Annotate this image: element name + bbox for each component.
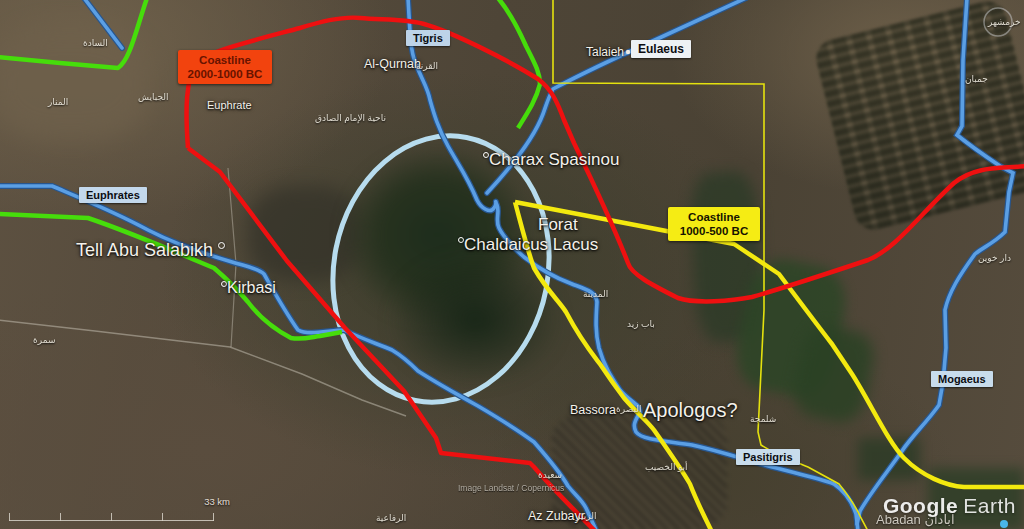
green-line-northwest bbox=[0, 0, 147, 68]
river-tag-euphrates[interactable]: Euphrates bbox=[79, 187, 147, 203]
label-chaldaicus-lacus[interactable]: Chaldaicus Lacus bbox=[458, 235, 598, 255]
watermark-earth: Earth bbox=[963, 494, 1016, 517]
arabic-label-dar-khoein: دار خوین bbox=[978, 253, 1011, 263]
legend-coastline-1000-500[interactable]: Coastline 1000-500 BC bbox=[668, 207, 760, 241]
green-line-north bbox=[498, 0, 540, 128]
arabic-label-bab-zaid: باب زيد bbox=[627, 319, 655, 329]
scale-bar-label: 33 km bbox=[150, 496, 230, 507]
arabic-label-jomban: جمبان bbox=[965, 74, 988, 84]
google-earth-watermark: GoogleEarth bbox=[883, 494, 1016, 518]
watermark-google: Google bbox=[883, 494, 958, 517]
arabic-label-saida: سعيدة bbox=[538, 470, 562, 480]
placemark-ring-icon bbox=[218, 242, 225, 249]
arabic-label-rifaiya: الرفاعية bbox=[376, 513, 406, 523]
label-apologos[interactable]: Apologos? bbox=[643, 399, 738, 422]
imagery-attribution: Image Landsat / Copernicus bbox=[458, 483, 564, 493]
label-forat[interactable]: Forat bbox=[538, 215, 578, 235]
label-kirbasi[interactable]: Kirbasi bbox=[221, 279, 276, 297]
legend-line2: 2000-1000 BC bbox=[184, 67, 266, 81]
scale-bar-tick bbox=[60, 513, 61, 521]
river-tag-eulaeus[interactable]: Eulaeus bbox=[631, 40, 691, 58]
arabic-label-al-qurnah: القرنة bbox=[416, 61, 438, 71]
legend-line1: Coastline bbox=[674, 210, 754, 224]
arabic-label-basra: البصرة bbox=[616, 404, 641, 414]
overlay-lines-layer bbox=[0, 0, 1024, 529]
label-bassora: Bassora bbox=[570, 403, 616, 417]
arabic-label-al-sada: السادة bbox=[83, 38, 108, 48]
arabic-label-nahiyat-imam: ناحية الإمام الصادق bbox=[315, 113, 386, 123]
label-charax-spasinou[interactable]: Charax Spasinou bbox=[483, 150, 619, 170]
arabic-label-abu-al-khasib: أبو الخصيب bbox=[645, 462, 688, 472]
arabic-label-samra: سمرة bbox=[33, 335, 55, 345]
arabic-label-khorramshahr: خرمشهر bbox=[988, 17, 1021, 27]
legend-line2: 1000-500 BC bbox=[674, 224, 754, 238]
legend-coastline-2000-1000[interactable]: Coastline 2000-1000 BC bbox=[178, 50, 272, 84]
river-tag-mogaeus[interactable]: Mogaeus bbox=[931, 371, 993, 387]
scale-bar-tick bbox=[162, 513, 163, 521]
label-text: Chaldaicus Lacus bbox=[464, 235, 598, 254]
arabic-label-al-madina: المدينة bbox=[583, 289, 608, 299]
label-al-qurnah: Al-Qurnah bbox=[364, 57, 421, 71]
scale-bar-tick bbox=[213, 513, 214, 521]
legend-line1: Coastline bbox=[184, 53, 266, 67]
arabic-label-zubair: الزبير bbox=[576, 511, 596, 521]
label-tell-abu-salabikh[interactable]: Tell Abu Salabikh bbox=[76, 240, 225, 261]
label-text: Tell Abu Salabikh bbox=[76, 240, 213, 260]
marker-dot-southeast bbox=[1000, 520, 1008, 528]
arabic-label-al-jabayish: الجبايش bbox=[138, 92, 169, 102]
river-tag-tigris[interactable]: Tigris bbox=[406, 30, 450, 46]
scale-bar bbox=[9, 512, 214, 521]
scale-bar-tick bbox=[111, 513, 112, 521]
talaieh-marker-dot bbox=[626, 50, 630, 54]
label-euphrate-river: Euphrate bbox=[207, 99, 252, 111]
label-text: Kirbasi bbox=[227, 279, 276, 296]
label-text: Charax Spasinou bbox=[489, 150, 619, 169]
label-talaieh: Talaieh bbox=[586, 45, 624, 59]
scale-bar-tick bbox=[9, 513, 10, 521]
arabic-label-al-manar: المنار bbox=[48, 97, 68, 107]
arabic-label-shalamja: شلمجة bbox=[750, 414, 776, 424]
river-tag-pasitigris[interactable]: Pasitigris bbox=[736, 449, 800, 465]
map-canvas[interactable]: Coastline 2000-1000 BC Coastline 1000-50… bbox=[0, 0, 1024, 529]
